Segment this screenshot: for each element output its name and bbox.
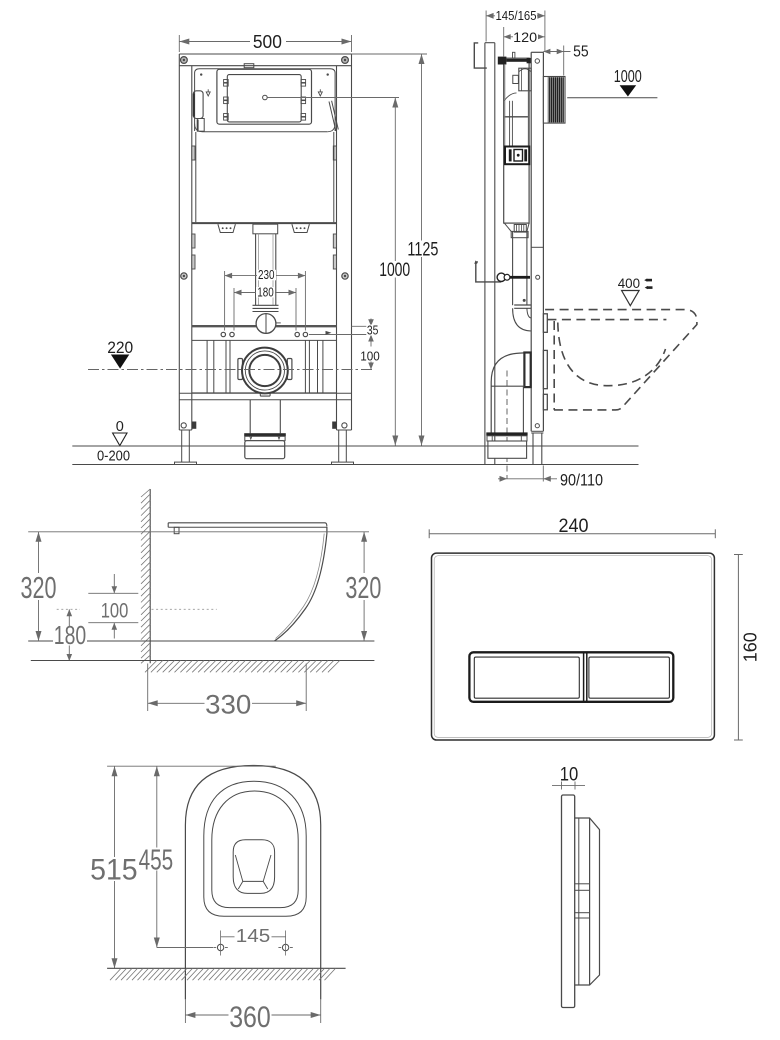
svg-text:55: 55 (573, 43, 589, 60)
svg-text:1000: 1000 (379, 260, 410, 281)
svg-text:230: 230 (258, 268, 275, 282)
svg-text:360: 360 (229, 1001, 271, 1034)
svg-text:1125: 1125 (407, 240, 438, 261)
svg-text:455: 455 (139, 845, 174, 877)
svg-text:320: 320 (345, 570, 381, 605)
svg-text:10: 10 (560, 763, 579, 785)
svg-text:145/165: 145/165 (496, 9, 537, 23)
svg-text:0-200: 0-200 (97, 448, 130, 464)
svg-text:1000: 1000 (614, 66, 642, 86)
svg-text:120: 120 (513, 29, 537, 45)
svg-text:160: 160 (741, 632, 761, 662)
svg-text:500: 500 (253, 31, 282, 52)
svg-text:320: 320 (21, 570, 57, 605)
svg-text:90/110: 90/110 (560, 471, 603, 490)
svg-text:515: 515 (90, 854, 138, 887)
svg-text:400: 400 (618, 275, 641, 291)
svg-text:180: 180 (54, 620, 86, 650)
svg-text:100: 100 (360, 348, 380, 363)
svg-text:35: 35 (367, 324, 379, 338)
svg-text:330: 330 (205, 689, 251, 719)
svg-text:145: 145 (236, 925, 271, 946)
svg-text:180: 180 (257, 285, 274, 299)
svg-text:100: 100 (101, 598, 129, 622)
